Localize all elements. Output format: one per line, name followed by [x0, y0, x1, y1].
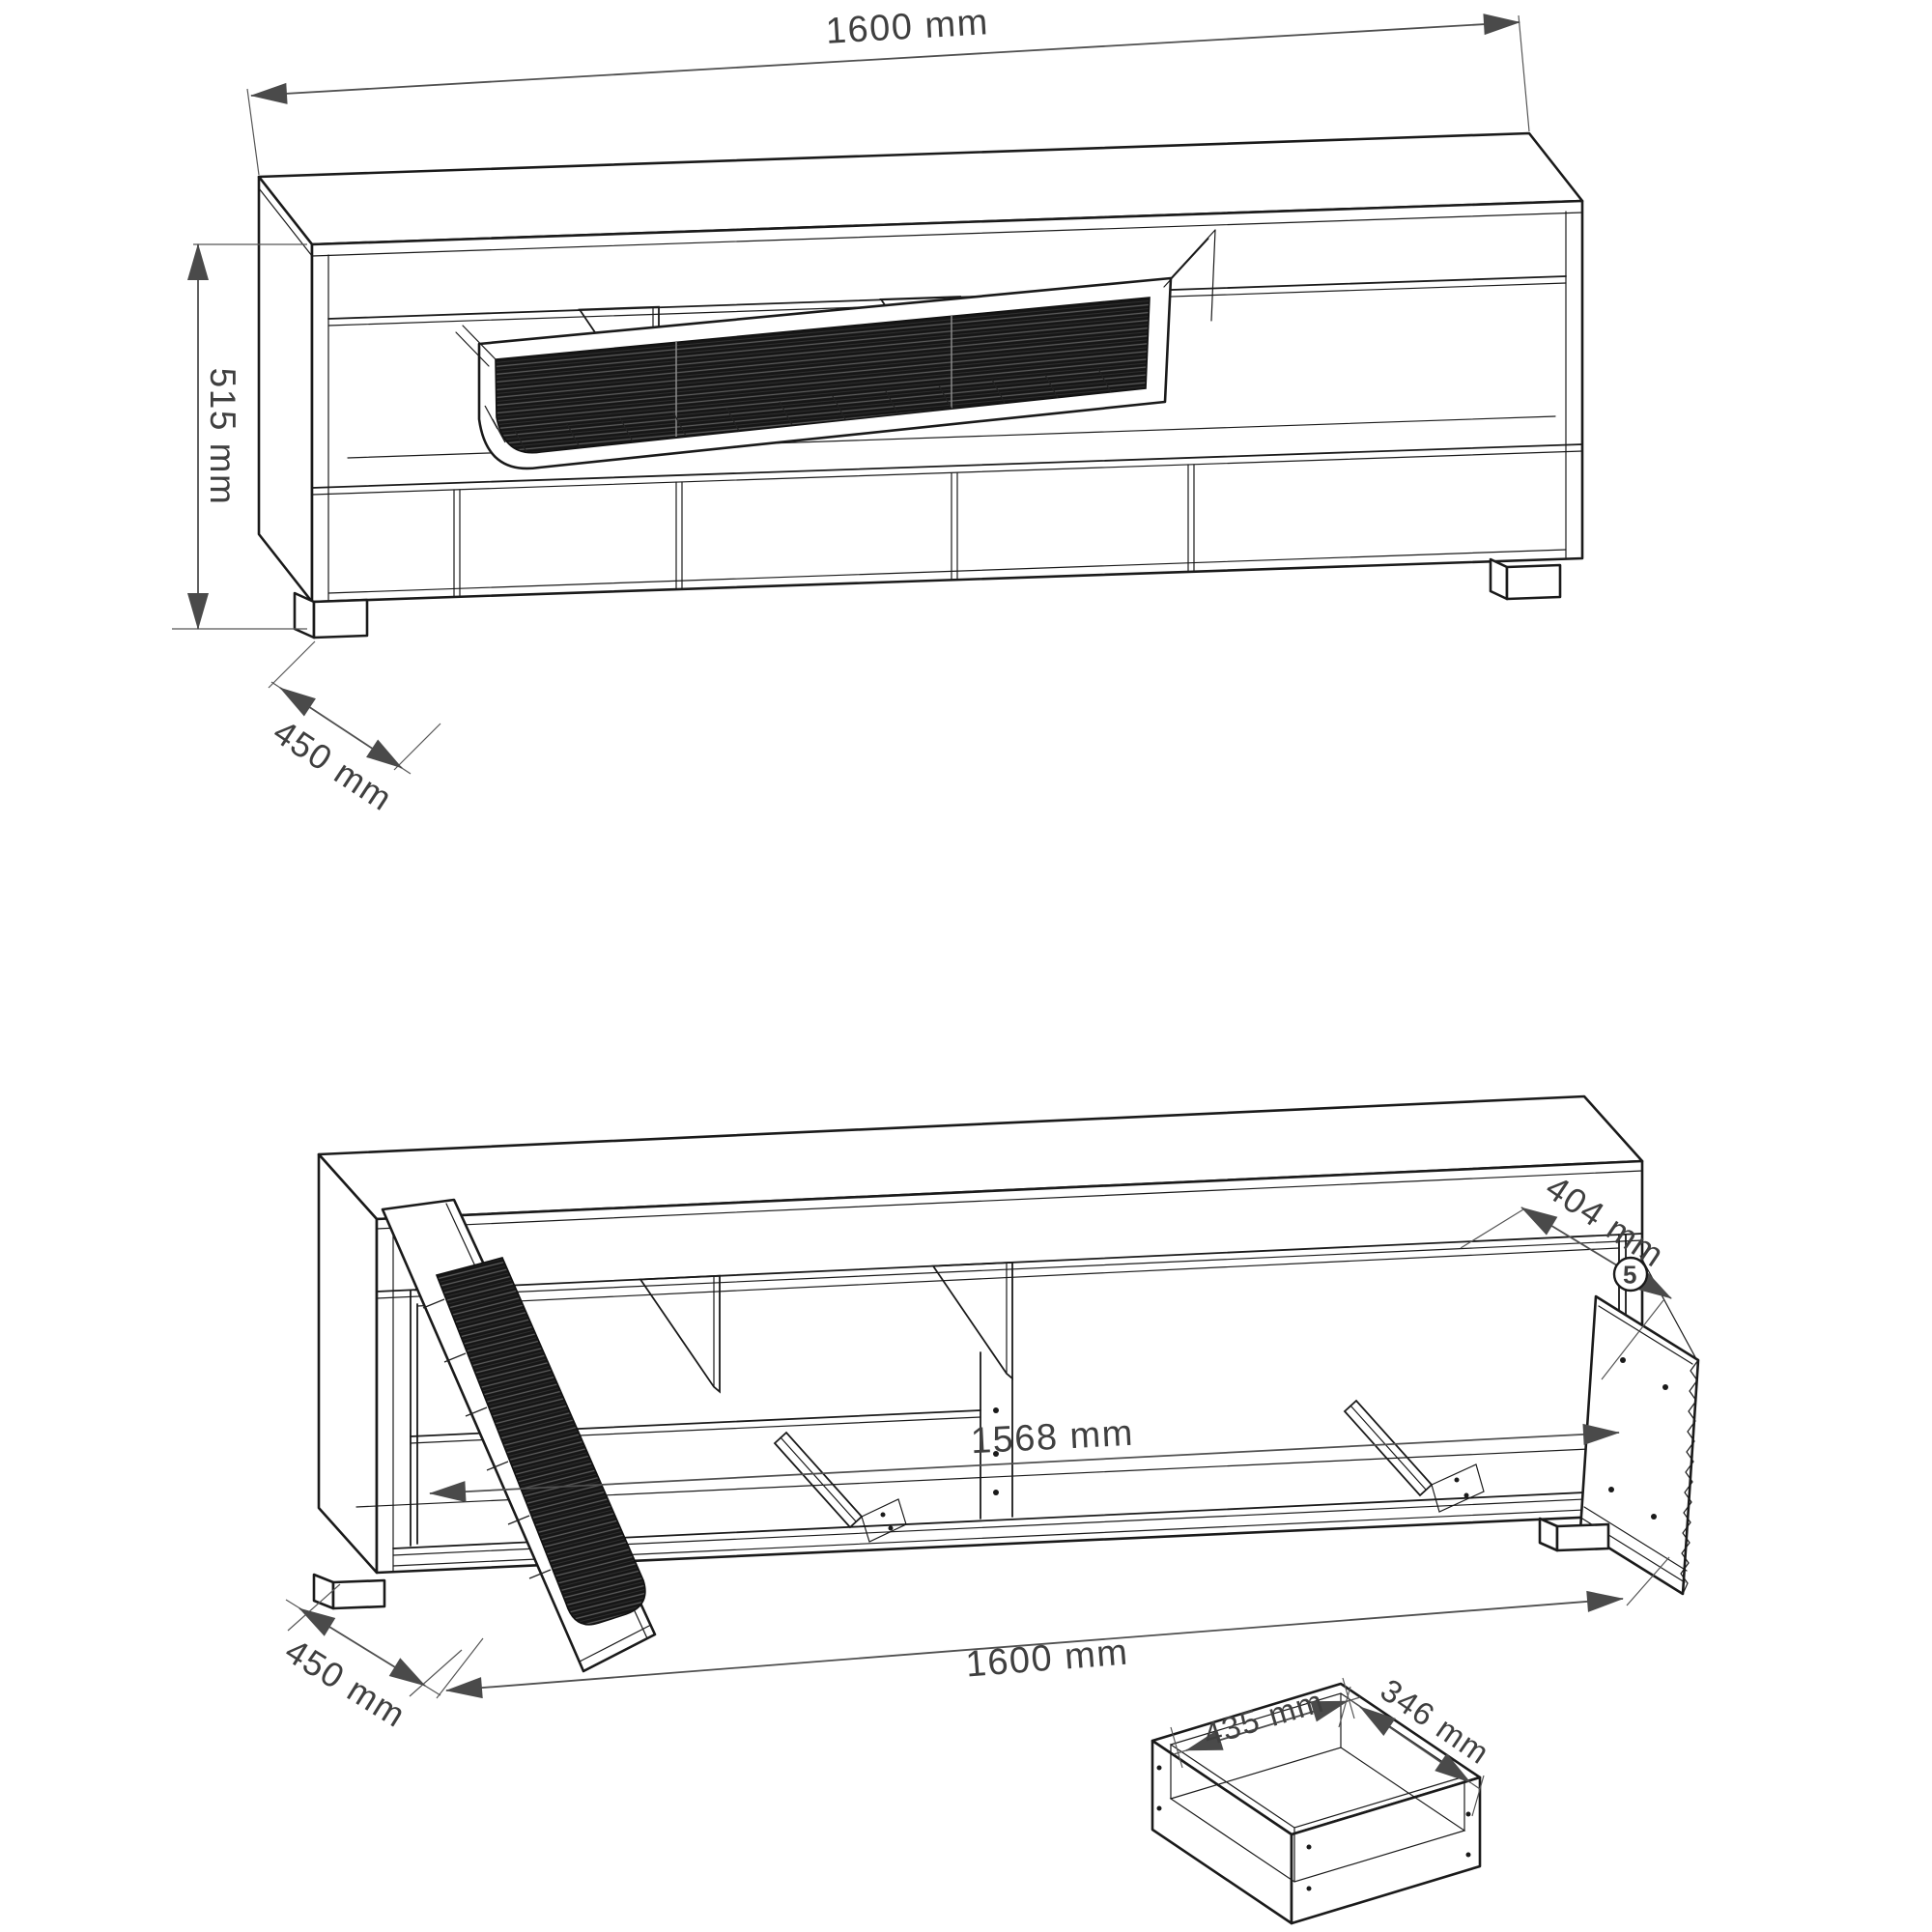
open-left-face: [319, 1154, 377, 1573]
foot: [314, 1575, 333, 1608]
dim-label-closed-depth: 450 mm: [267, 712, 401, 819]
foot: [333, 1580, 384, 1608]
technical-drawing-page: 1600 mm 515 mm 450 mm: [0, 0, 1932, 1932]
foot: [1557, 1524, 1608, 1550]
dim-label-open-width: 1600 mm: [964, 1632, 1130, 1685]
drawer-detail: 435 mm 346 mm: [1152, 1671, 1496, 1923]
dim-label-open-depth: 450 mm: [278, 1631, 413, 1735]
dim-label-closed-height: 515 mm: [203, 368, 242, 506]
foot: [1540, 1519, 1557, 1550]
dim-label-open-inner-width: 1568 mm: [970, 1413, 1135, 1462]
open-view: 404 mm 5 1568 mm 1600 mm 450 mm: [278, 1096, 1698, 1735]
part-callout-number: 5: [1623, 1260, 1638, 1289]
technical-drawing-canvas: 1600 mm 515 mm 450 mm: [0, 0, 1932, 1932]
dim-label-closed-width: 1600 mm: [825, 2, 990, 52]
foot: [295, 593, 314, 638]
closed-view: 1600 mm 515 mm 450 mm: [172, 2, 1582, 818]
foot: [1491, 559, 1507, 599]
closed-left-face: [259, 177, 312, 602]
foot: [1507, 565, 1560, 599]
foot: [314, 600, 367, 638]
dim-closed-depth: 450 mm: [267, 641, 440, 819]
